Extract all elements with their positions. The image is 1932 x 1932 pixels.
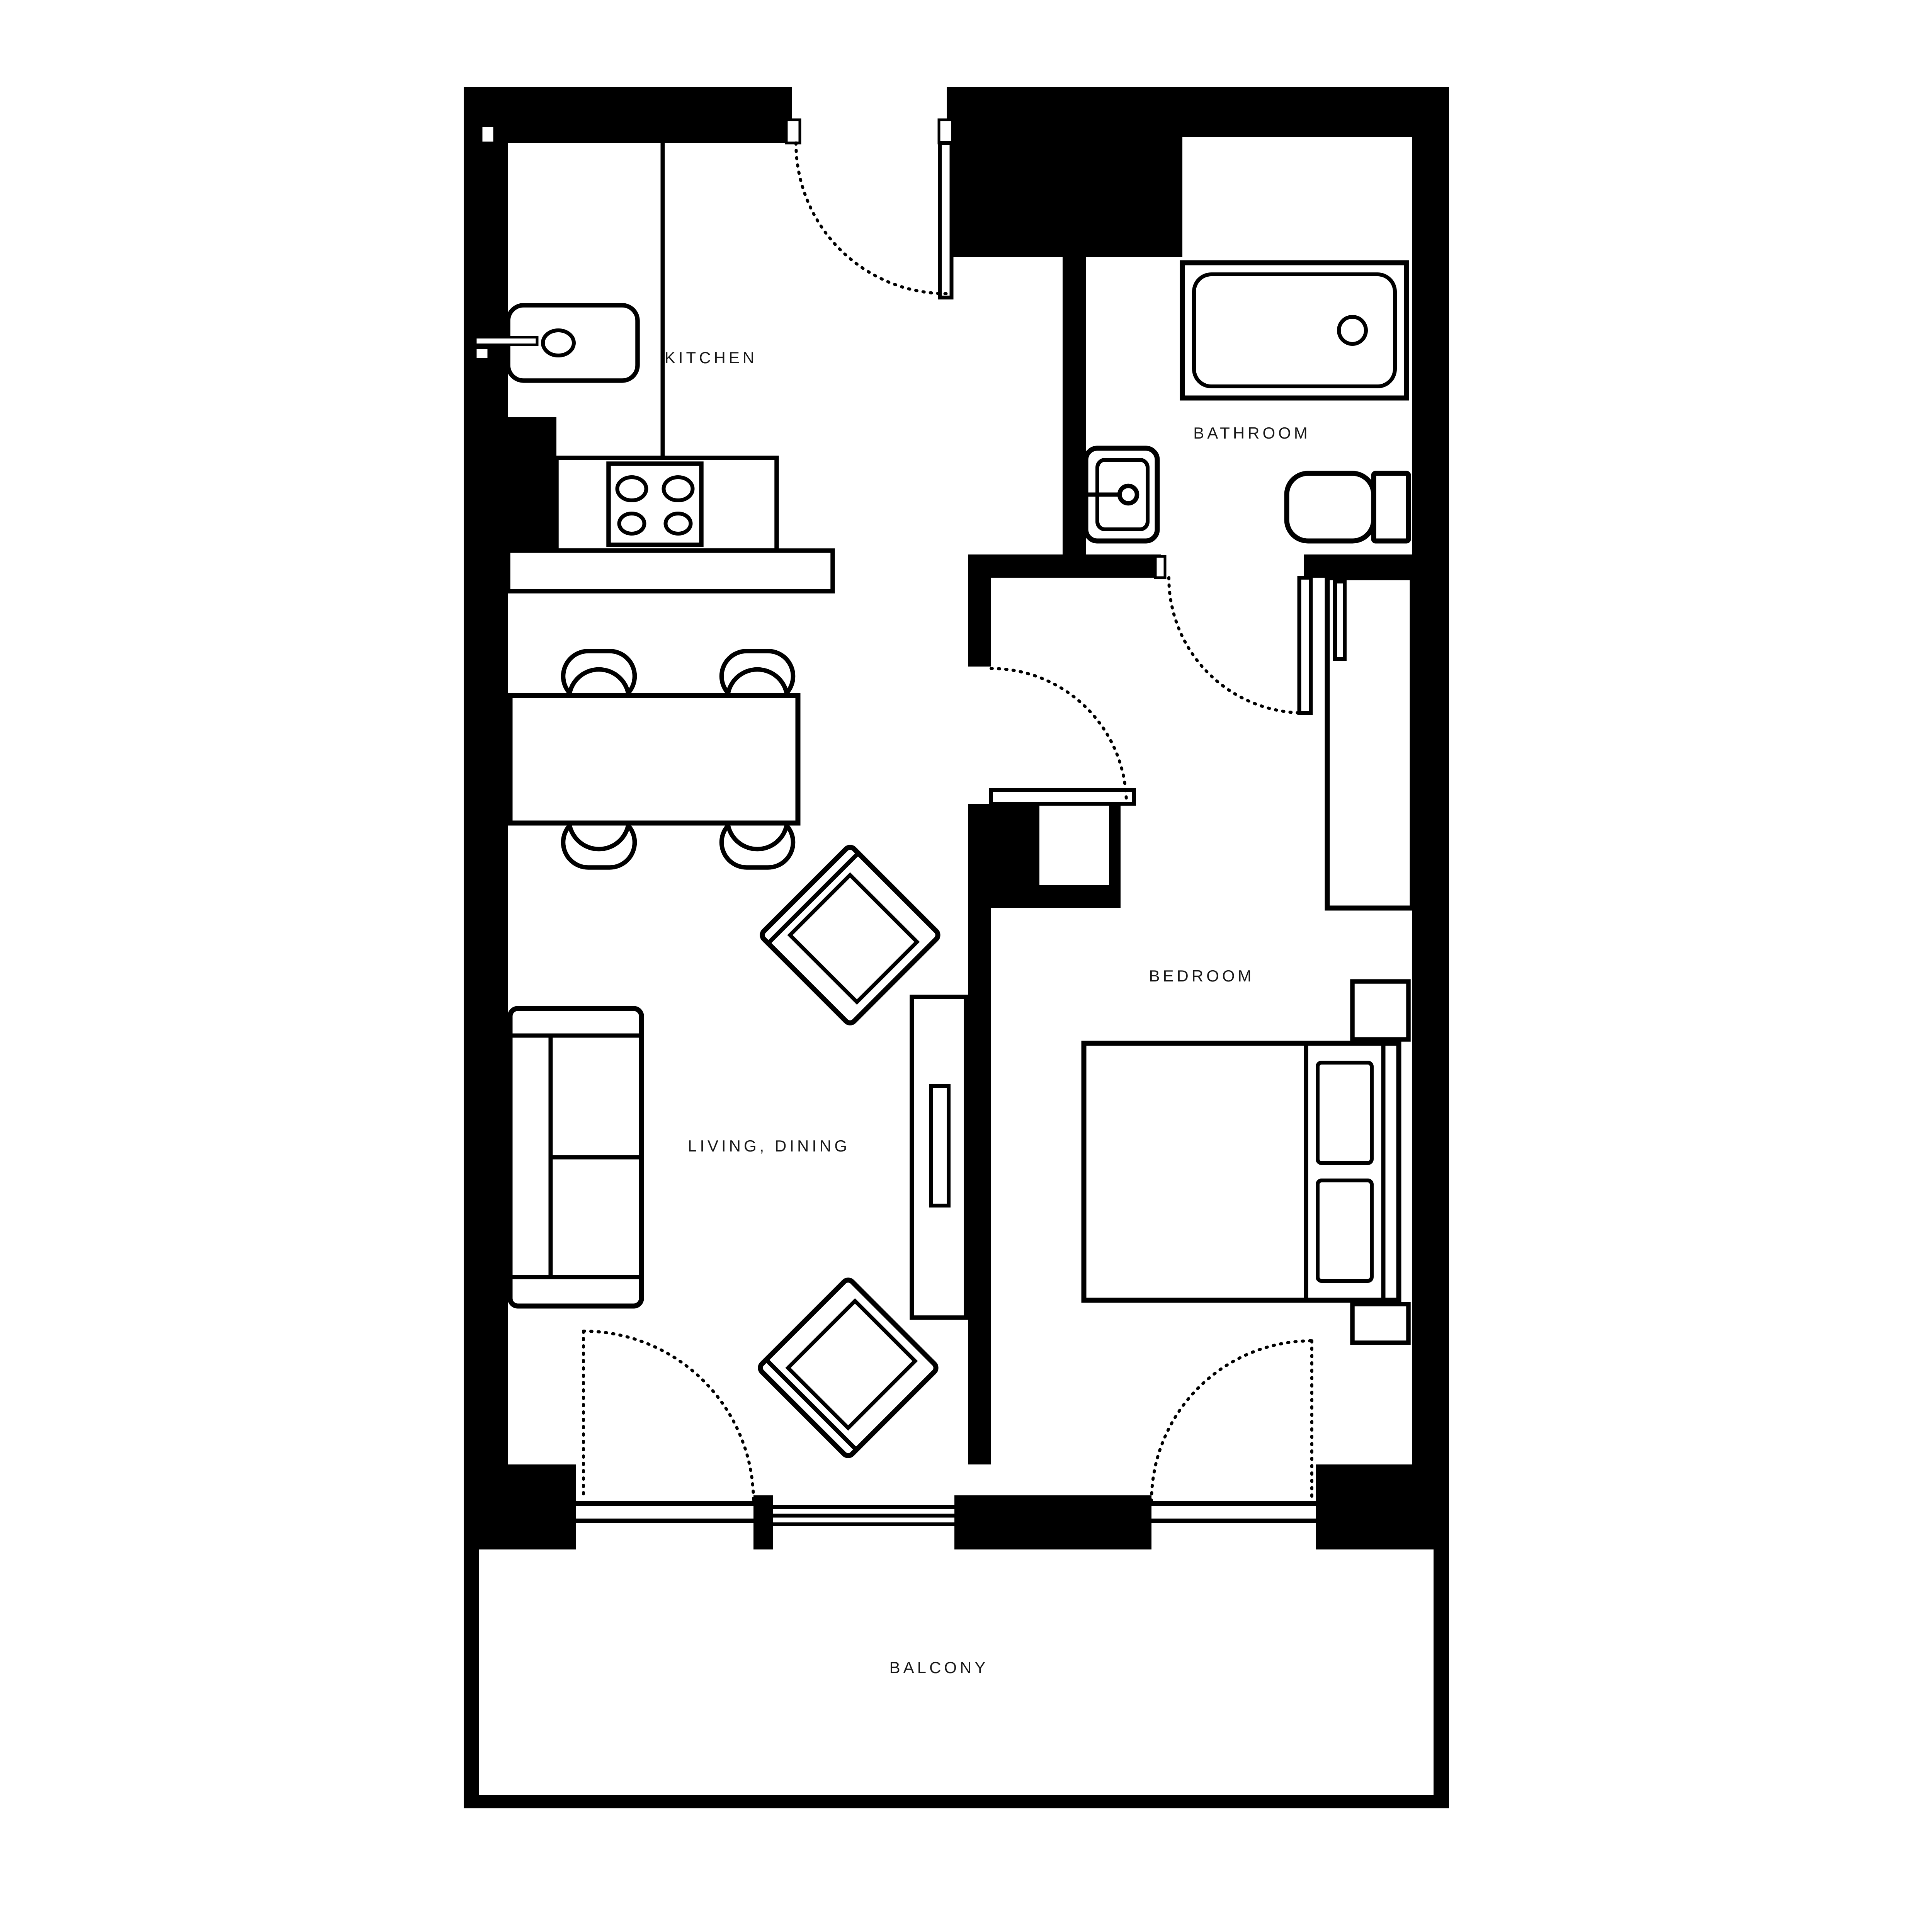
toilet-bowl (1287, 473, 1374, 541)
living-window (773, 1505, 954, 1526)
wall-left (464, 87, 508, 1464)
wall-right (1412, 87, 1449, 1464)
wall-bottom-pier (753, 1495, 773, 1549)
balcony-door-bedroom-swing-arc (1151, 1341, 1312, 1501)
bathroom-door (1155, 556, 1311, 713)
balcony-wall-left (464, 1549, 479, 1808)
bathroom-label: BATHROOM (1193, 424, 1311, 442)
wall-top-kitchen (464, 87, 792, 143)
wall-bathroom-bottom-left (968, 554, 1161, 578)
kitchen-fixtures (475, 143, 833, 591)
bathroom-door-swing-arc (1169, 578, 1304, 713)
bedroom-door (991, 668, 1134, 804)
wall-divider-lower (968, 908, 991, 1464)
balcony-door-living-swing-arc (583, 1331, 753, 1501)
entry-door-swing-arc (796, 143, 947, 294)
entry-door (481, 120, 952, 298)
wall-bathroom-left (1063, 257, 1086, 578)
wall-top-bathroom (1182, 87, 1449, 137)
kitchen-label: KITCHEN (665, 349, 757, 367)
toilet-cistern (1374, 473, 1408, 541)
wall-bottom-left-block (464, 1464, 576, 1549)
bedside-table-top (1352, 981, 1408, 1039)
balcony-label: BALCONY (889, 1658, 989, 1677)
entry-door-leaf (940, 143, 952, 298)
niche-bottom (968, 885, 1121, 908)
entry-door-jamb-left (786, 120, 800, 143)
wall-bottom-right-block (1316, 1464, 1449, 1549)
bed (1084, 1043, 1399, 1300)
bathtub (1182, 263, 1406, 398)
balcony-wall-right (1434, 1549, 1449, 1808)
bedroom-door-swing-arc (991, 668, 1126, 804)
toilet (1287, 473, 1408, 541)
entry-door-jamb-right (939, 120, 952, 143)
kitchen-bar-counter (508, 551, 833, 591)
wall-bathroom-bottom-right (1304, 554, 1412, 578)
kitchen-wall-stub (508, 417, 556, 551)
dining-table (510, 696, 798, 823)
stove (609, 464, 701, 545)
tv-console (912, 997, 966, 1318)
bedroom-label: BEDROOM (1149, 967, 1254, 985)
bedside-table-bottom (1352, 1304, 1408, 1343)
wall-divider-upper (968, 578, 991, 667)
balcony-door-living (576, 1331, 753, 1523)
wall-bottom-center-block (954, 1495, 1151, 1549)
bathroom-sink (1086, 448, 1157, 541)
wall-top-block (947, 87, 1182, 257)
living-dining-label: LIVING, DINING (688, 1137, 850, 1155)
floor-plan: KITCHEN BATHROOM LIVING, DINING BEDROOM … (0, 0, 1932, 1932)
sofa (510, 1009, 641, 1306)
wardrobe (1327, 578, 1412, 908)
kitchen-faucet (475, 337, 537, 345)
wall-corner-tick (481, 126, 495, 143)
bathroom-door-leaf (1299, 578, 1311, 713)
balcony-wall-bottom (464, 1795, 1449, 1808)
dining-set (510, 651, 798, 867)
bedroom-door-leaf (991, 790, 1134, 804)
bathroom-door-jamb-left (1155, 556, 1165, 578)
balcony-door-bedroom (1151, 1341, 1316, 1523)
